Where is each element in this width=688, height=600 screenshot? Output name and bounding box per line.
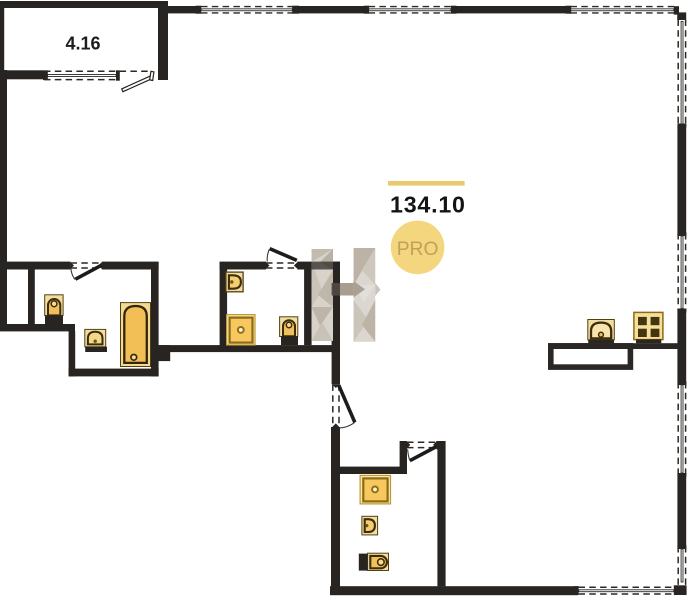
svg-text:4.16: 4.16 (65, 33, 100, 53)
svg-text:PRO: PRO (397, 239, 439, 260)
svg-text:134.10: 134.10 (390, 192, 466, 218)
